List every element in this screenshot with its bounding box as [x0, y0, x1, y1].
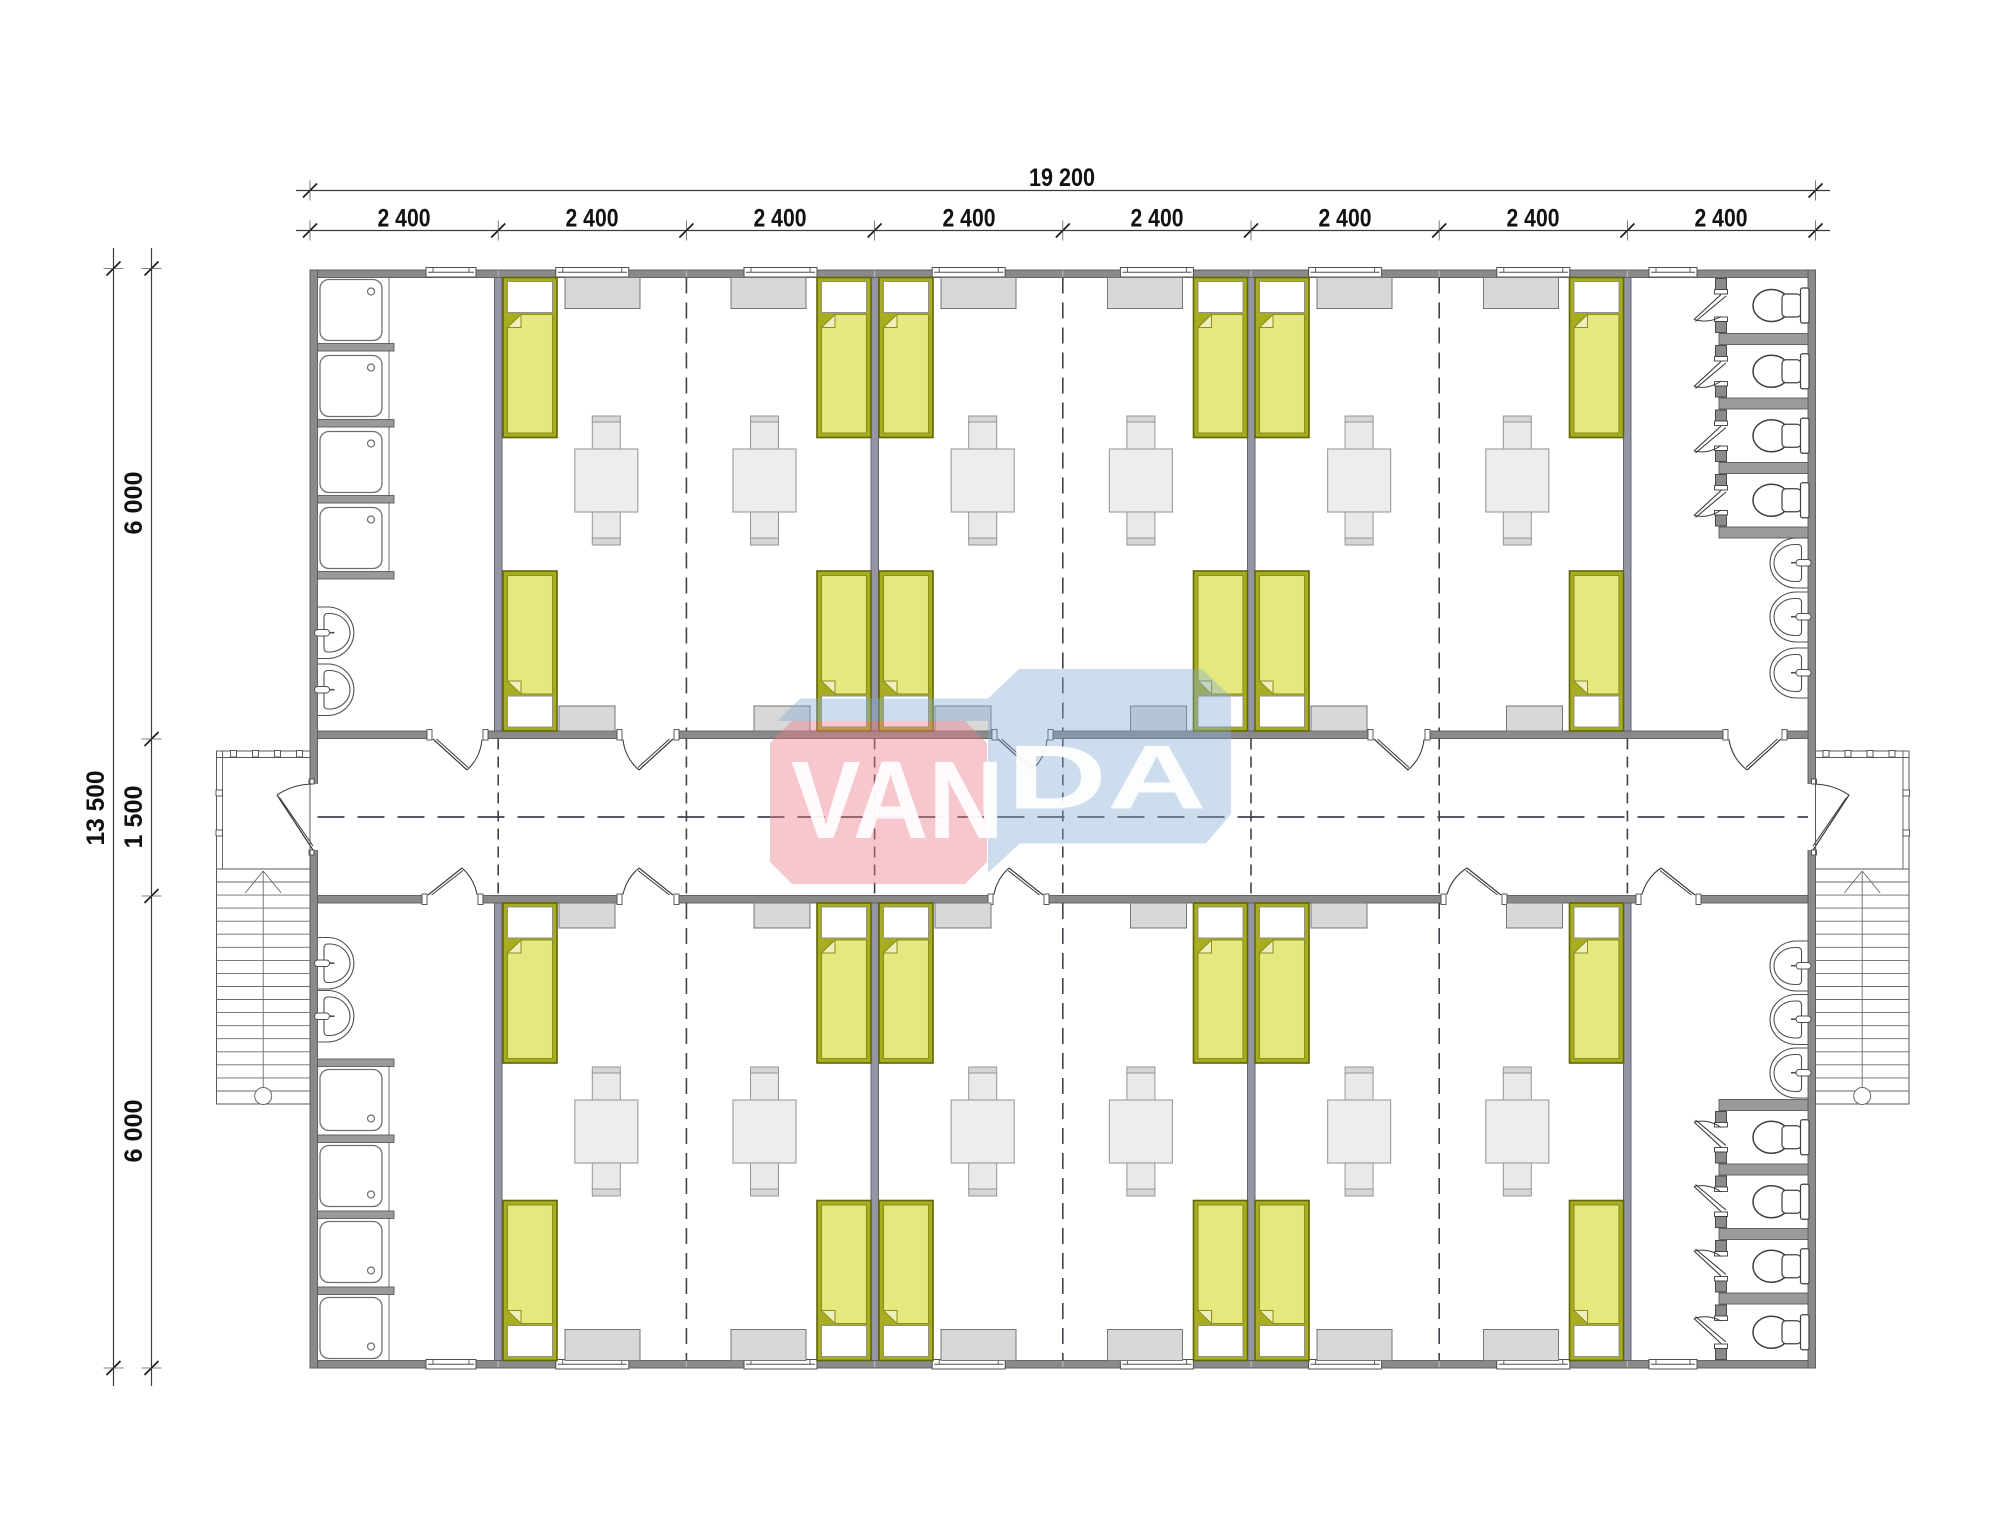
svg-text:2 400: 2 400: [754, 205, 807, 233]
svg-text:2 400: 2 400: [1131, 205, 1184, 233]
svg-text:1 500: 1 500: [120, 786, 148, 849]
svg-text:2 400: 2 400: [1507, 205, 1560, 233]
svg-text:DA: DA: [1007, 726, 1207, 828]
svg-text:2 400: 2 400: [1695, 205, 1748, 233]
svg-text:2 400: 2 400: [378, 205, 431, 233]
svg-text:6 000: 6 000: [120, 472, 148, 535]
svg-text:13 500: 13 500: [82, 771, 110, 846]
svg-text:2 400: 2 400: [1319, 205, 1372, 233]
svg-text:19 200: 19 200: [1029, 164, 1095, 192]
svg-text:VAN: VAN: [791, 739, 1004, 862]
svg-text:2 400: 2 400: [943, 205, 996, 233]
svg-text:2 400: 2 400: [566, 205, 619, 233]
svg-text:6 000: 6 000: [120, 1100, 148, 1163]
